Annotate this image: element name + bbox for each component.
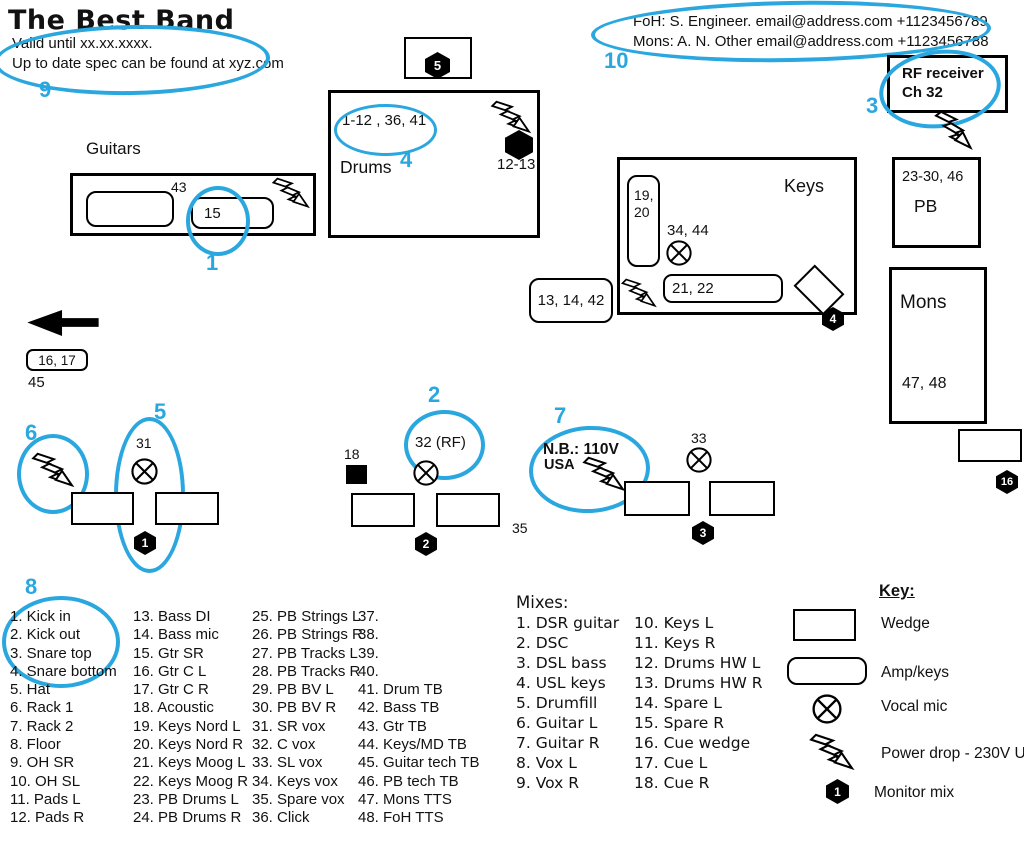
stage-left-arrow-icon	[27, 310, 99, 336]
monitor-mix-hexagon: 2	[415, 532, 437, 556]
list-item: 8. Vox L	[516, 753, 619, 773]
pos2-acoustic-channel: 18	[344, 446, 360, 462]
list-item: 43. Gtr TB	[358, 718, 479, 736]
legend-wedge-sample	[793, 609, 856, 641]
keys-label: Keys	[784, 176, 824, 197]
mons-contact: Mons: A. N. Other email@address.com +112…	[633, 33, 989, 50]
monitor-wedge	[624, 481, 690, 516]
playback-box: 23-30, 46 PB	[892, 157, 981, 248]
guitar-amp1-tb: 43	[171, 179, 187, 195]
drums-hw-mixes: 12-13	[497, 156, 535, 173]
list-item: 22. Keys Moog R	[133, 773, 248, 791]
list-item: 14. Bass mic	[133, 626, 248, 644]
list-item: 6. Guitar L	[516, 713, 619, 733]
list-item: 4. USL keys	[516, 673, 619, 693]
monitor-mix-hexagon: 16	[996, 470, 1018, 494]
monitor-wedge	[351, 493, 415, 527]
list-item: 15. Spare R	[634, 713, 763, 733]
legend-title: Key:	[879, 582, 915, 601]
list-item: 15. Gtr SR	[133, 645, 248, 663]
callout-1: 1	[206, 250, 218, 276]
rf-receiver-label: RF receiver	[902, 65, 984, 82]
list-item: 40.	[358, 663, 479, 681]
vocal-mic-icon	[131, 458, 158, 485]
drums-label: Drums	[340, 157, 392, 178]
list-item: 12. Drums HW L	[634, 653, 763, 673]
mons-desk-box: Mons 47, 48	[889, 267, 987, 424]
vocal-mic-icon	[413, 460, 439, 486]
list-item: 16. Cue wedge	[634, 733, 763, 753]
keys-nord: 19, 20	[627, 175, 660, 267]
channel-list-col2: 13. Bass DI14. Bass mic15. Gtr SR16. Gtr…	[133, 608, 248, 828]
list-item: 19. Keys Nord L	[133, 718, 248, 736]
keys-nord-ch1: 19,	[634, 187, 653, 203]
validity-line2: Up to date spec can be found at xyz.com	[12, 55, 284, 72]
list-item: 7. Guitar R	[516, 733, 619, 753]
foh-contact: FoH: S. Engineer. email@address.com +112…	[633, 13, 988, 30]
list-item: 20. Keys Nord R	[133, 736, 248, 754]
callout-7: 7	[554, 403, 566, 429]
vocal-mic-icon	[666, 240, 692, 266]
band-title: The Best Band	[8, 5, 234, 36]
keys-moog: 21, 22	[663, 274, 783, 303]
legend-monitor-label: Monitor mix	[874, 784, 954, 802]
list-item: 2. Kick out	[10, 626, 117, 644]
list-item: 47. Mons TTS	[358, 791, 479, 809]
spare-vox-channel: 35	[512, 520, 528, 536]
playback-channels: 23-30, 46	[902, 169, 963, 185]
guitar-amp2-channel: 15	[204, 205, 221, 222]
callout-5: 5	[154, 399, 166, 425]
bass-rig: 13, 14, 42	[529, 278, 613, 323]
legend-wedge-label: Wedge	[881, 615, 930, 633]
list-item: 9. OH SR	[10, 754, 117, 772]
list-item: 11. Keys R	[634, 633, 763, 653]
list-item: 10. Keys L	[634, 613, 763, 633]
monitor-mix-hexagon: 3	[692, 521, 714, 545]
list-item: 13. Bass DI	[133, 608, 248, 626]
list-item: 18. Cue R	[634, 773, 763, 793]
guitars-label: Guitars	[86, 139, 141, 159]
list-item: 35. Spare vox	[252, 791, 363, 809]
list-item: 16. Gtr C L	[133, 663, 248, 681]
legend-amp-sample	[787, 657, 867, 685]
keys-vox-channels: 34, 44	[667, 222, 709, 239]
list-item: 31. SR vox	[252, 718, 363, 736]
mixes-col1: 1. DSR guitar2. DSC3. DSL bass4. USL key…	[516, 613, 619, 793]
list-item: 5. Drumfill	[516, 693, 619, 713]
list-item: 39.	[358, 645, 479, 663]
callout-4: 4	[400, 147, 412, 173]
vocal-mic-icon	[686, 447, 712, 473]
channel-list-col3: 25. PB Strings L26. PB Strings R27. PB T…	[252, 608, 363, 828]
playback-label: PB	[914, 196, 937, 217]
legend-mic-label: Vocal mic	[881, 698, 947, 716]
rf-receiver-box: RF receiver Ch 32	[887, 55, 1008, 113]
power-drop-icon	[582, 456, 626, 492]
list-item: 1. Kick in	[10, 608, 117, 626]
callout-2: 2	[428, 382, 440, 408]
list-item: 37.	[358, 608, 479, 626]
list-item: 48. FoH TTS	[358, 809, 479, 827]
list-item: 27. PB Tracks L	[252, 645, 363, 663]
monitor-mix-hexagon: 1	[826, 779, 849, 804]
list-item: 5. Hat	[10, 681, 117, 699]
pos2-vox-channel: 32 (RF)	[415, 434, 466, 451]
nb-voltage-region: USA	[544, 457, 575, 473]
list-item: 3. Snare top	[10, 645, 117, 663]
pos1-vox-channel: 31	[136, 435, 152, 451]
power-drop-icon	[490, 100, 532, 134]
list-item: 21. Keys Moog L	[133, 754, 248, 772]
list-item: 33. SL vox	[252, 754, 363, 772]
list-item: 38.	[358, 626, 479, 644]
list-item: 17. Gtr C R	[133, 681, 248, 699]
list-item: 34. Keys vox	[252, 773, 363, 791]
side-left-tb: 45	[28, 374, 45, 391]
list-item: 44. Keys/MD TB	[358, 736, 479, 754]
list-item: 4. Snare bottom	[10, 663, 117, 681]
keys-nord-ch2: 20	[634, 204, 650, 220]
list-item: 23. PB Drums L	[133, 791, 248, 809]
monitor-mix-hexagon: 1	[134, 531, 156, 555]
list-item: 46. PB tech TB	[358, 773, 479, 791]
list-item: 8. Floor	[10, 736, 117, 754]
list-item: 42. Bass TB	[358, 699, 479, 717]
pos3-vox-channel: 33	[691, 430, 707, 446]
stage-plot: The Best Band Valid until xx.xx.xxxx. Up…	[0, 0, 1024, 855]
list-item: 3. DSL bass	[516, 653, 619, 673]
power-drop-icon	[32, 452, 74, 488]
guitar-amp-1	[86, 191, 174, 227]
mons-desk-channels: 47, 48	[902, 375, 946, 393]
cue-wedge	[958, 429, 1022, 462]
list-item: 26. PB Strings R	[252, 626, 363, 644]
list-item: 41. Drum TB	[358, 681, 479, 699]
list-item: 2. DSC	[516, 633, 619, 653]
list-item: 18. Acoustic	[133, 699, 248, 717]
list-item: 17. Cue L	[634, 753, 763, 773]
list-item: 25. PB Strings L	[252, 608, 363, 626]
list-item: 7. Rack 2	[10, 718, 117, 736]
mixes-col2: 10. Keys L11. Keys R12. Drums HW L13. Dr…	[634, 613, 763, 793]
list-item: 30. PB BV R	[252, 699, 363, 717]
legend-power-label: Power drop - 230V UK	[881, 745, 1024, 763]
callout-3: 3	[866, 93, 878, 119]
side-left-box: 16, 17	[26, 349, 88, 371]
list-item: 11. Pads L	[10, 791, 117, 809]
power-drop-icon	[931, 109, 978, 150]
list-item: 1. DSR guitar	[516, 613, 619, 633]
list-item: 6. Rack 1	[10, 699, 117, 717]
callout-10: 10	[604, 48, 628, 74]
list-item: 14. Spare L	[634, 693, 763, 713]
callout-6: 6	[25, 420, 37, 446]
mons-desk-label: Mons	[900, 292, 946, 314]
power-drop-icon	[620, 278, 658, 308]
keys-moog-channels: 21, 22	[672, 280, 714, 297]
list-item: 13. Drums HW R	[634, 673, 763, 693]
monitor-wedge	[709, 481, 775, 516]
legend-amp-label: Amp/keys	[881, 664, 949, 682]
validity-line1: Valid until xx.xx.xxxx.	[12, 35, 153, 52]
list-item: 12. Pads R	[10, 809, 117, 827]
list-item: 9. Vox R	[516, 773, 619, 793]
mixes-title: Mixes:	[516, 593, 568, 613]
list-item: 28. PB Tracks R	[252, 663, 363, 681]
list-item: 10. OH SL	[10, 773, 117, 791]
callout-9: 9	[39, 77, 51, 103]
power-drop-icon	[810, 733, 854, 771]
list-item: 24. PB Drums R	[133, 809, 248, 827]
list-item: 36. Click	[252, 809, 363, 827]
monitor-wedge	[71, 492, 134, 525]
callout-8: 8	[25, 574, 37, 600]
acoustic-guitar-marker	[346, 465, 367, 484]
list-item: 29. PB BV L	[252, 681, 363, 699]
channel-list-col4: 37.38.39.40.41. Drum TB42. Bass TB43. Gt…	[358, 608, 479, 828]
power-drop-icon	[271, 177, 311, 209]
guitar-amp-2: 15	[191, 197, 274, 229]
vocal-mic-icon	[812, 694, 842, 724]
monitor-wedge	[155, 492, 219, 525]
channel-list-col1: 1. Kick in2. Kick out3. Snare top4. Snar…	[10, 608, 117, 828]
monitor-wedge	[436, 493, 500, 527]
drums-channels: 1-12 , 36, 41	[342, 112, 426, 129]
list-item: 32. C vox	[252, 736, 363, 754]
rf-receiver-channel: Ch 32	[902, 84, 943, 101]
list-item: 45. Guitar tech TB	[358, 754, 479, 772]
